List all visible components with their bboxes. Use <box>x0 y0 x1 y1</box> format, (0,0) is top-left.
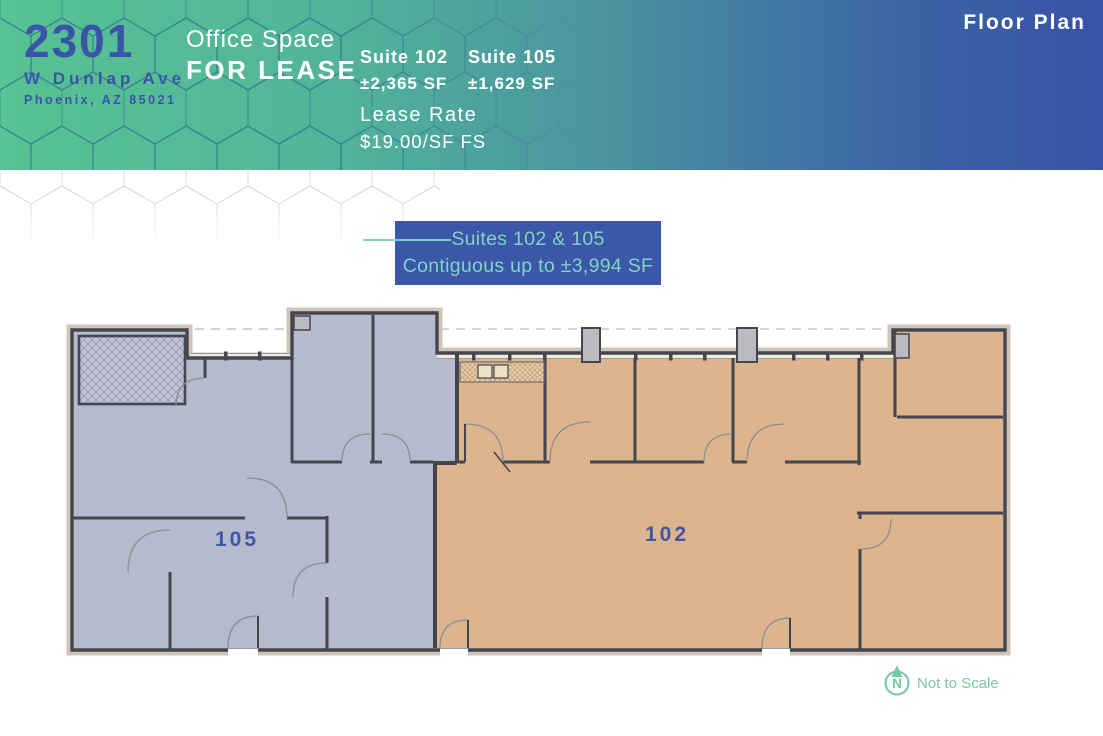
listing-type-line2: FOR LEASE <box>186 55 357 86</box>
callout-connector-line <box>363 239 451 241</box>
suite-summary: Suite 102 ±2,365 SF Suite 105 ±1,629 SF <box>360 47 560 94</box>
compass-letter: N <box>892 676 902 691</box>
suite-105-area: ±1,629 SF <box>468 74 560 94</box>
sink <box>494 365 508 378</box>
address-street: W Dunlap Ave <box>24 69 185 89</box>
address-number: 2301 <box>24 18 185 66</box>
lease-rate-label: Lease Rate <box>360 104 486 127</box>
not-to-scale-label: Not to Scale <box>917 675 999 692</box>
flyer-page: 2301 W Dunlap Ave Phoenix, AZ 85021 Offi… <box>0 0 1103 736</box>
listing-type: Office Space FOR LEASE <box>186 26 357 86</box>
suite-105-label: 105 <box>215 528 259 551</box>
kitchen-counter <box>460 362 544 382</box>
property-address: 2301 W Dunlap Ave Phoenix, AZ 85021 <box>24 18 185 107</box>
floor-plan: 105 102 N Not to Scale <box>0 300 1103 736</box>
suite-102-name: Suite 102 <box>360 47 452 68</box>
header-band: 2301 W Dunlap Ave Phoenix, AZ 85021 Offi… <box>0 0 1103 170</box>
listing-type-line1: Office Space <box>186 26 357 54</box>
callout-contiguous-line: Contiguous up to ±3,994 SF <box>403 255 654 278</box>
page-title: Floor Plan <box>963 11 1086 35</box>
sink <box>478 365 492 378</box>
suite-102-area: ±2,365 SF <box>360 74 452 94</box>
address-city: Phoenix, AZ 85021 <box>24 93 185 107</box>
suite-105-name: Suite 105 <box>468 47 560 68</box>
north-compass-icon: N <box>886 665 909 695</box>
suite-105-summary: Suite 105 ±1,629 SF <box>468 47 560 94</box>
lease-rate: Lease Rate $19.00/SF FS <box>360 104 486 153</box>
suite-102-summary: Suite 102 ±2,365 SF <box>360 47 452 94</box>
suite-102-label: 102 <box>645 523 689 546</box>
contiguous-callout: Suites 102 & 105 Contiguous up to ±3,994… <box>395 221 661 285</box>
callout-suites-line: Suites 102 & 105 <box>451 228 604 251</box>
hatched-area <box>79 336 185 404</box>
lease-rate-value: $19.00/SF FS <box>360 131 486 153</box>
hexagon-pattern-below <box>0 168 440 248</box>
